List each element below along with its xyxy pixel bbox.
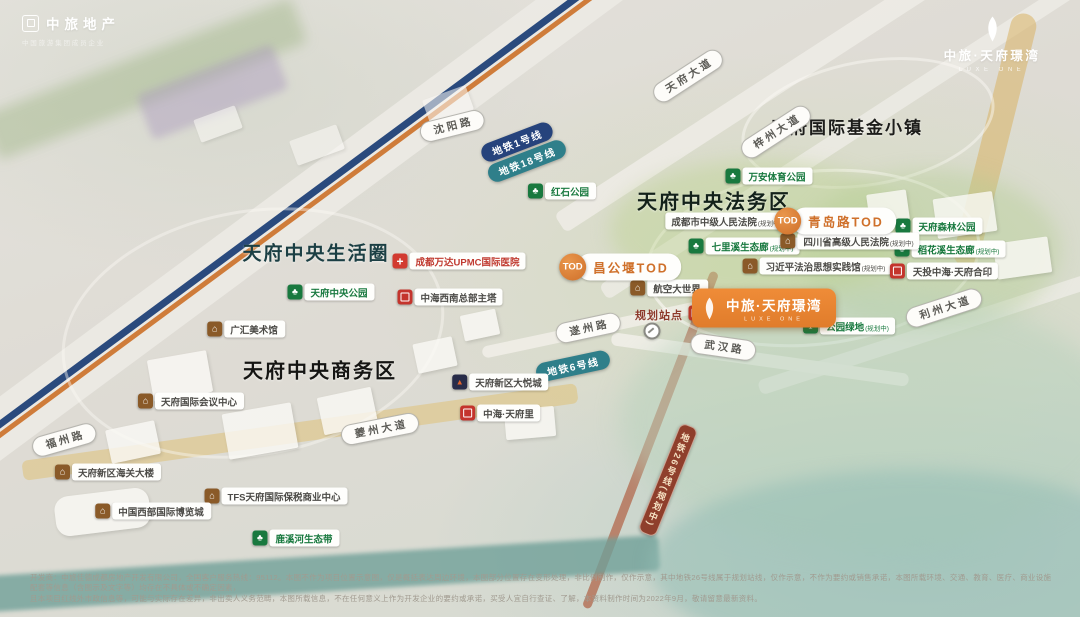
tree-icon: ♣ [528,184,543,199]
building-icon: ⌂ [780,234,795,249]
building-icon: ⌂ [630,281,645,296]
poi-wanda-upmc-hospital: + 成都万达UPMC国际医院 [393,253,526,270]
area-title-central-business-district: 天府中央商务区 [243,355,397,384]
project-logo-sub: LUXE ONE [922,67,1062,73]
building-block [460,309,501,342]
disclaimer-line1: 开发商：中旅佳德成都房地产开发有限公司，全国客户服务热线：95112。本图不作为… [30,573,1052,594]
disclaimer-line2: 且本项目红线外市政信息等，可能与实际存在差异，非出卖人义务范畴，本图所载信息，不… [30,594,1052,605]
poi-coli-southwest-hq-tower: 中海西南总部主塔 [397,289,502,306]
leaf-icon [985,16,1000,42]
tod-badge: TOD [774,208,801,235]
building-icon: ⌂ [55,465,70,480]
poi-joy-city: ▲ 天府新区大悦城 [452,374,548,391]
poi-hongshi-park: ♣ 红石公园 [528,183,596,200]
developer-tagline: 中国旅游集团成员企业 [22,37,120,47]
area-title-central-living-circle: 天府中央生活圈 [242,239,389,266]
poi-tfs-bonded-commerce-center: ⌂ TFS天府国际保税商业中心 [205,488,348,505]
poi-western-china-expo-city: ⌂ 中国西部国际博览城 [95,503,211,520]
building-icon: ⌂ [743,259,758,274]
tod-badge: TOD [559,254,586,281]
tree-icon: ♣ [689,239,704,254]
poi-luxi-river-eco-belt: ♣ 鹿溪河生态带 [252,530,339,547]
project-banner-sub: LUXE ONE [726,317,822,323]
project-banner-name: 中旅·天府璟湾 [726,295,822,315]
poi-rule-of-law-hall: ⌂ 习近平法治思想实践馆(规划中) [743,258,892,275]
tree-icon: ♣ [252,531,267,546]
coli-brand-icon [460,406,475,421]
planned-station-icon [644,323,661,340]
building-icon: ⌂ [138,394,153,409]
project-logo: 中旅·天府璟湾 LUXE ONE [922,16,1062,73]
leaf-icon [703,296,716,320]
coli-brand-icon [890,264,905,279]
poi-wanan-sports-park: ♣ 万安体育公园 [725,168,812,185]
area-title-central-legal-district: 天府中央法务区 [637,186,791,215]
joycity-brand-icon: ▲ [452,375,467,390]
building-icon: ⌂ [207,322,222,337]
poi-intl-conference-center: ⌂ 天府国际会议中心 [138,393,244,410]
poi-sichuan-higher-court: ⌂ 四川省高级人民法院(规划中) [780,233,919,250]
developer-name: 中旅地产 [46,13,120,33]
coli-brand-icon [397,290,412,305]
planned-station-label: 规划站点 [635,307,683,323]
poi-tianfu-central-park: ♣ 天府中央公园 [287,284,374,301]
project-banner: 中旅·天府璟湾 LUXE ONE [692,289,836,328]
tree-icon: ♣ [287,285,302,300]
tree-icon: ♣ [895,219,910,234]
developer-logo: 中旅地产 中国旅游集团成员企业 [22,13,120,47]
project-logo-name: 中旅·天府璟湾 [922,45,1062,64]
masterplan-map: 中旅地产 中国旅游集团成员企业 中旅·天府璟湾 LUXE ONE 天府中央生活圈… [0,0,1080,617]
medical-cross-icon: + [393,254,408,269]
seal-icon [22,15,39,32]
poi-tiantou-coli-tianfu-heyin: 天投中海·天府合印 [890,263,998,280]
building-icon: ⌂ [95,504,110,519]
disclaimer: 开发商：中旅佳德成都房地产开发有限公司，全国客户服务热线：95112。本图不作为… [30,573,1052,605]
tod-changgongyan: TOD 昌公堰TOD [559,254,681,281]
building-icon: ⌂ [205,489,220,504]
poi-coli-tianfuli: 中海·天府里 [460,405,540,422]
road-label-tianfu-avenue: 天府大道 [649,46,727,107]
poi-customs-building: ⌂ 天府新区海关大楼 [55,464,161,481]
tod-qingdao-road: TOD 青岛路TOD [774,208,896,235]
poi-guanghui-art-museum: ⌂ 广汇美术馆 [207,321,285,338]
tree-icon: ♣ [725,169,740,184]
